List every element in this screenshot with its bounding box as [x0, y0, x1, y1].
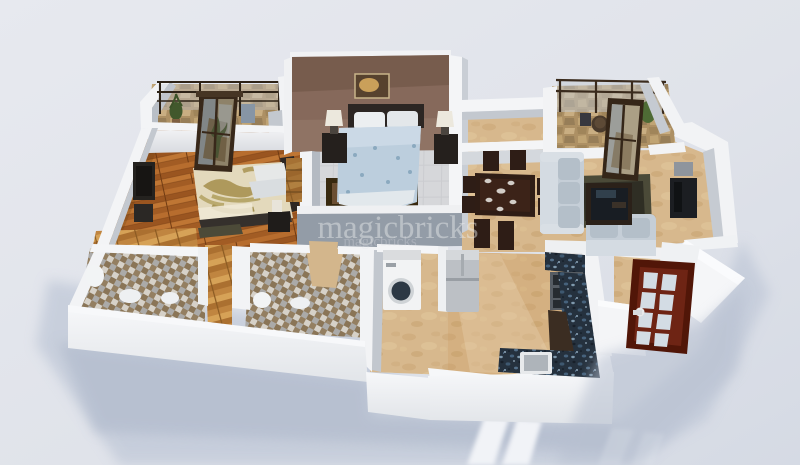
svg-text:magicbricks: magicbricks [343, 234, 416, 250]
